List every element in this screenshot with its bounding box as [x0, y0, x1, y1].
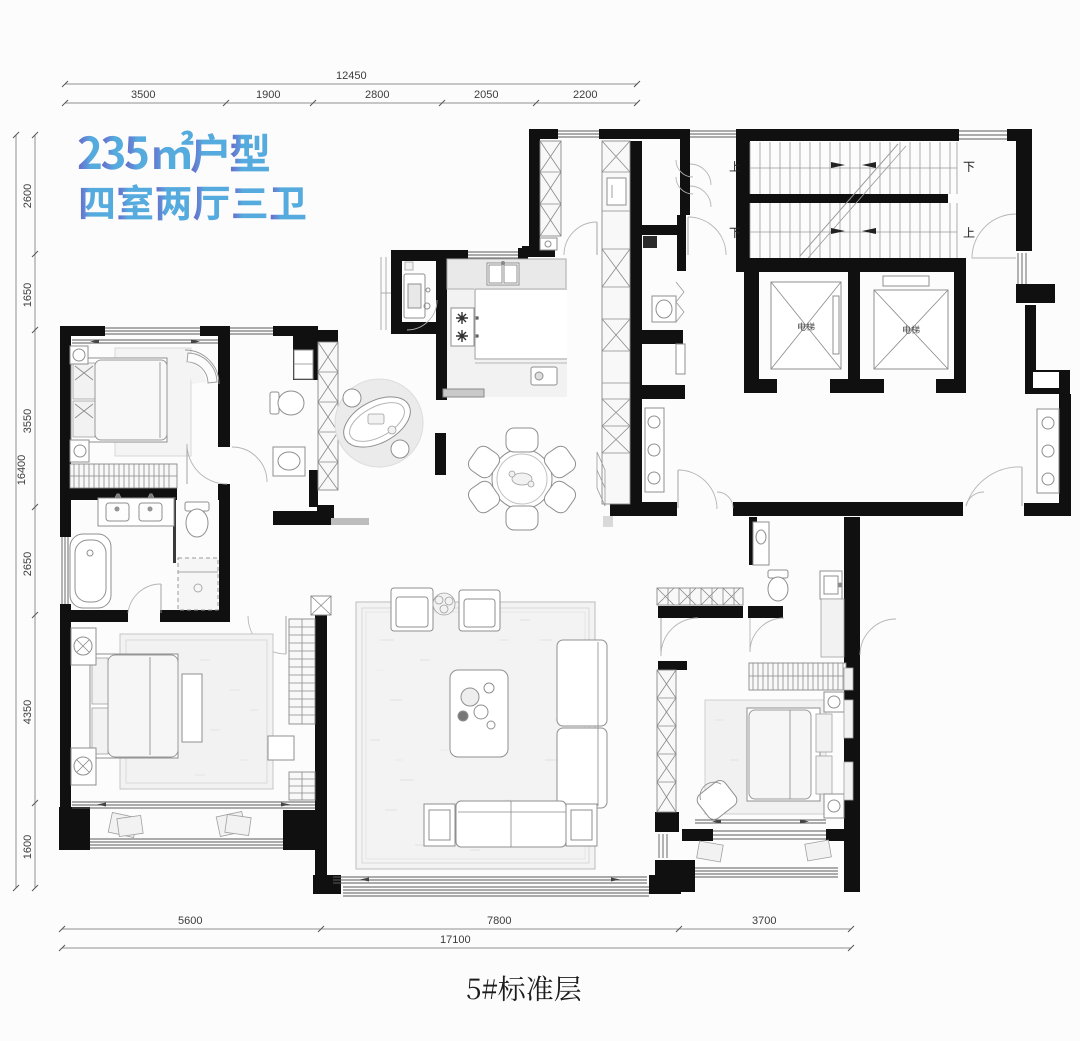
- svg-text:2600: 2600: [22, 184, 34, 208]
- svg-text:3550: 3550: [22, 409, 34, 433]
- svg-text:12450: 12450: [336, 70, 367, 82]
- svg-text:1900: 1900: [256, 89, 280, 101]
- svg-text:2050: 2050: [474, 89, 498, 101]
- svg-text:1600: 1600: [22, 835, 34, 859]
- svg-text:16400: 16400: [16, 455, 28, 486]
- svg-text:2800: 2800: [365, 89, 389, 101]
- svg-text:2650: 2650: [22, 552, 34, 576]
- svg-text:4350: 4350: [22, 700, 34, 724]
- svg-text:5600: 5600: [178, 915, 202, 927]
- svg-text:3500: 3500: [131, 89, 155, 101]
- svg-text:7800: 7800: [487, 915, 511, 927]
- svg-text:3700: 3700: [752, 915, 776, 927]
- svg-text:2200: 2200: [573, 89, 597, 101]
- svg-text:17100: 17100: [440, 934, 471, 946]
- svg-text:1650: 1650: [22, 283, 34, 307]
